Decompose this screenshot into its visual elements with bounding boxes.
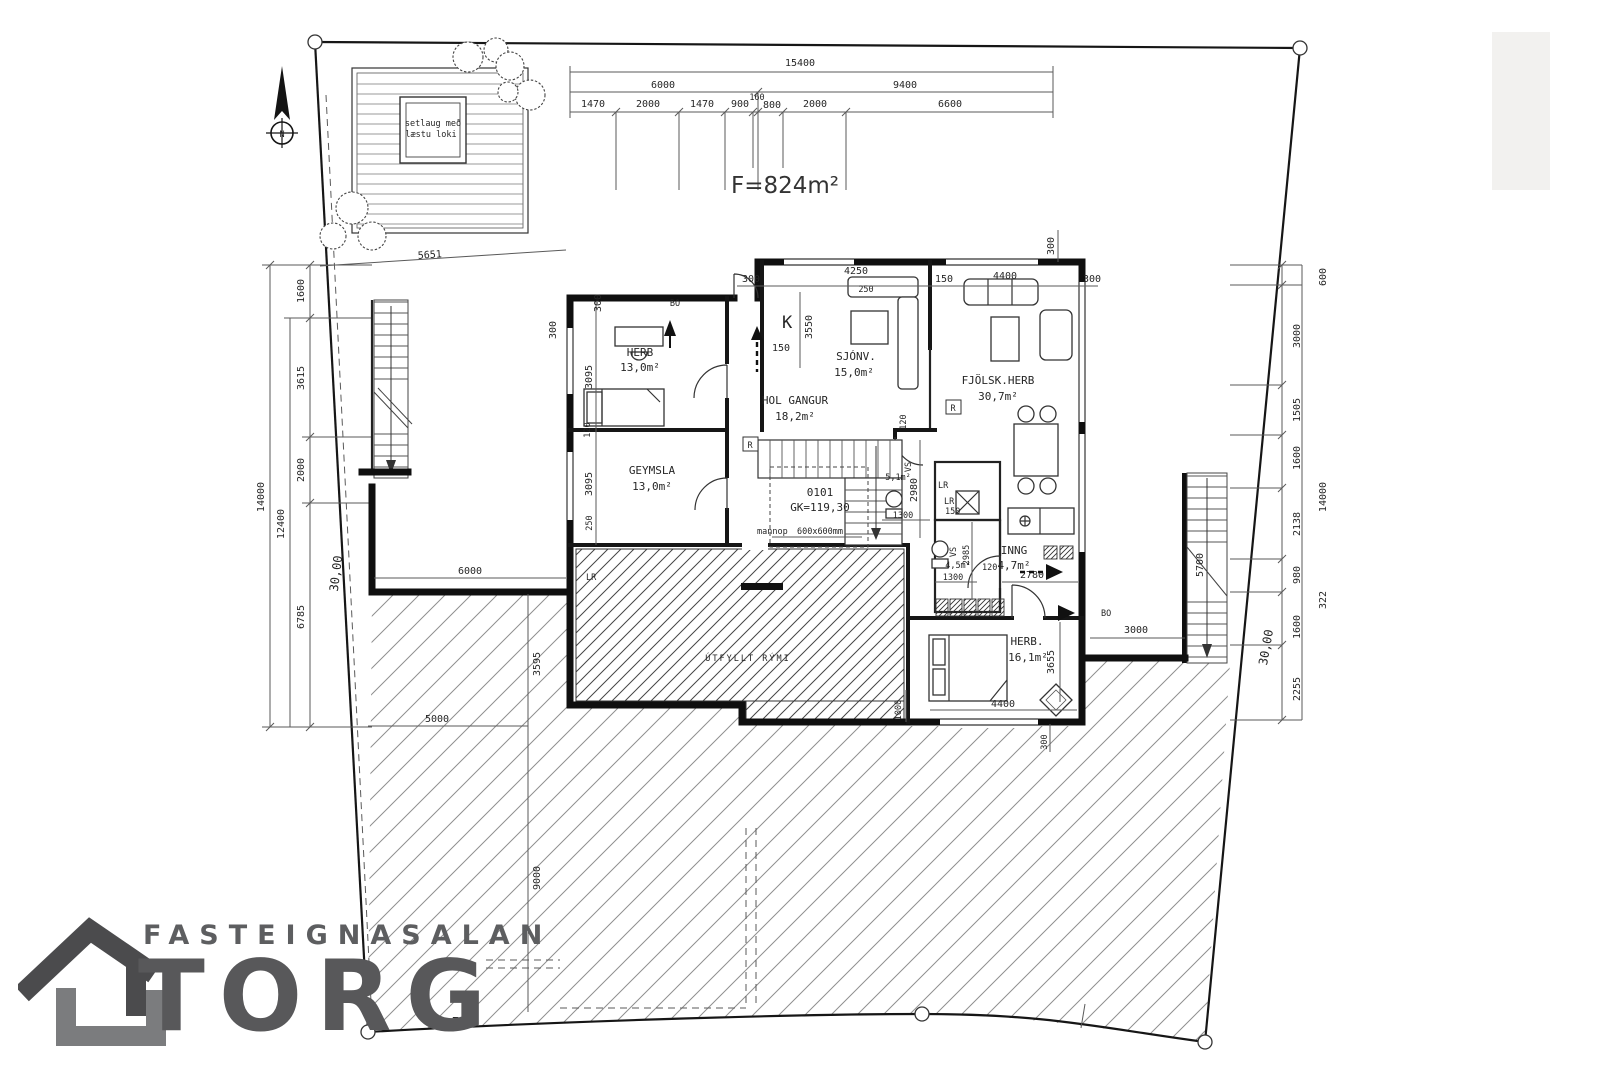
room-label-hol: HOL GANGUR [762, 394, 829, 407]
dim-1470: 1470 [581, 99, 605, 110]
label-lr-150: 150 [945, 507, 960, 517]
boundary-corner-marker [1198, 1035, 1212, 1049]
chair [1018, 478, 1034, 494]
dim-2000: 2000 [636, 99, 660, 110]
nightstand [1040, 684, 1072, 716]
dim-300-wall-a: 300 [548, 321, 559, 339]
dim-3550: 3550 [804, 315, 815, 339]
room-label-fjolsk: FJÖLSK.HERB [962, 374, 1035, 387]
room-label-herb1: HERB [627, 346, 654, 359]
dim-600: 600 [1318, 268, 1329, 286]
dim-150-up: 150 [772, 343, 790, 354]
hot-tub-label-2: læstu loki [405, 130, 456, 140]
dim-900: 900 [731, 99, 749, 110]
label-bo-right: BO [1101, 609, 1111, 619]
boundary-length-left: 30,00 [327, 555, 345, 593]
room-utfyllt-rymi: ÚTFYLLT RÝMI LR [576, 549, 904, 719]
window-glazed-right [1076, 282, 1088, 552]
label-lr-a: LR [586, 573, 597, 583]
dim-14000-left: 14000 [256, 482, 267, 512]
dim-3615: 3615 [296, 366, 307, 390]
wardrobe [936, 599, 1004, 616]
dim-1300-b: 1300 [943, 573, 963, 583]
window-herb2-bottom [940, 716, 1038, 728]
room-label-geymsla: GEYMSLA [629, 464, 676, 477]
dim-300-a: 300 [742, 274, 760, 285]
dim-3095-a: 3095 [584, 365, 595, 389]
dim-4400-top: 4400 [993, 271, 1017, 282]
dim-980: 980 [1292, 566, 1303, 584]
dim-1505: 1505 [1292, 398, 1303, 422]
coffee-table [991, 317, 1019, 361]
armchair [1040, 310, 1072, 360]
kitchen-counter [1008, 508, 1074, 534]
scan-artifact [1492, 32, 1550, 190]
dim-14000-right: 14000 [1318, 482, 1329, 512]
boundary-length-right: 30,00 [1256, 628, 1276, 666]
north-arrow-icon: N [266, 66, 298, 148]
chair [1040, 406, 1056, 422]
agency-logo: FASTEIGNASALAN TORG [18, 898, 538, 1063]
room-area-herb1: 13,0m² [620, 361, 660, 374]
dim-9000: 9000 [532, 866, 543, 890]
dim-6785: 6785 [296, 605, 307, 629]
hot-tub-label-1: setlaug með [405, 119, 461, 129]
dim-300-b: 300 [1083, 274, 1101, 285]
dim-1600-left: 1600 [296, 279, 307, 303]
symbol-r1: R [747, 441, 753, 451]
dim-chain-top: 15400 6000 9400 1470 2000 1470 900 160 8… [570, 58, 1053, 190]
dim-2138: 2138 [1292, 512, 1303, 536]
door-herb1 [694, 365, 727, 398]
dining-table [1014, 424, 1058, 476]
stove [1044, 546, 1057, 559]
window-fjolsk-top [946, 256, 1038, 268]
door-inng [1012, 585, 1045, 618]
dim-5000: 5000 [425, 714, 449, 725]
room-area-inng: 4,7m² [997, 559, 1030, 572]
dim-120-stair: 120 [899, 414, 909, 429]
dim-1470b: 1470 [690, 99, 714, 110]
dim-9400: 9400 [893, 80, 917, 91]
room-label-vs1: VS [904, 462, 914, 472]
desk [615, 327, 663, 346]
room-label-herb2: HERB. [1010, 635, 1043, 648]
dim-chain-left: 14000 12400 1600 3615 2000 6785 [256, 261, 372, 731]
boundary-corner-marker [308, 35, 322, 49]
label-lr-c: LR [944, 497, 955, 507]
dim-4250: 4250 [844, 266, 868, 277]
stove [1060, 546, 1073, 559]
dim-5700: 5700 [1195, 553, 1206, 577]
dim-150: 150 [935, 274, 953, 285]
dim-3095-b: 3095 [584, 472, 595, 496]
dim-1000: 1000 [894, 700, 904, 720]
dim-250-top: 250 [858, 285, 873, 295]
symbol-r2: R [950, 404, 956, 414]
dim-diagonal: 5651 [320, 249, 566, 266]
dim-4400-herb2: 4400 [991, 699, 1015, 710]
boundary-corner-marker [1293, 41, 1307, 55]
dim-322: 322 [1318, 591, 1329, 609]
room-label-utfyllt: ÚTFYLLT RÝMI [705, 652, 790, 664]
dim-800: 800 [763, 100, 781, 111]
dim-3000-right: 3000 [1292, 324, 1303, 348]
room-area-herb2: 16,1m² [1008, 651, 1048, 664]
label-lr-b: LR [938, 481, 949, 491]
mannop-opening [742, 540, 768, 550]
room-label-bath: VS [949, 547, 959, 557]
dim-120-wall: 120 [583, 422, 593, 437]
floor-plan-page: N setlaug með læstu loki [0, 0, 1600, 1066]
dim-2000-left: 2000 [296, 458, 307, 482]
main-stair: 0101 GK=119,30 mannop 600x600mm [757, 440, 902, 547]
fireplace-k-icon: K [782, 313, 793, 333]
toilet [932, 541, 948, 557]
toilet [886, 491, 902, 507]
dim-6600: 6600 [938, 99, 962, 110]
room-area-vs1: 5,1m² [885, 473, 911, 483]
room-label-inng: INNG [1001, 544, 1028, 557]
room-label-sjonv: SJÓNV. [836, 350, 876, 363]
unit-code: 0101 [807, 486, 834, 499]
plot-area-label: F=824m² [731, 173, 839, 199]
dim-chain-right: 600 14000 322 3000 1505 1600 2138 980 16… [1230, 261, 1329, 724]
dim-2255: 2255 [1292, 677, 1303, 701]
dim-12400: 12400 [276, 509, 287, 539]
dim-250: 250 [585, 515, 595, 530]
room-area-fjolsk: 30,7m² [978, 390, 1018, 403]
room-area-sjonv: 15,0m² [834, 366, 874, 379]
dim-300-vert: 300 [1046, 237, 1057, 255]
room-area-bath: 4,5m² [945, 561, 971, 571]
dim-3595: 3595 [532, 652, 543, 676]
room-area-geymsla: 13,0m² [632, 480, 672, 493]
window-geymsla-left [564, 452, 576, 520]
dim-1600-right-b: 1600 [1292, 615, 1303, 639]
mannop-label: mannop [757, 527, 788, 537]
window-herb-left [564, 328, 576, 394]
boundary-corner-marker [915, 1007, 929, 1021]
exterior-stair-left [362, 300, 412, 478]
dim-6000: 6000 [651, 80, 675, 91]
dim-15400: 15400 [785, 58, 815, 69]
north-letter: N [279, 130, 284, 140]
label-bo-top: BO [670, 299, 680, 309]
mannop-size: 600x600mm [797, 527, 843, 537]
logo-text-torg: TORG [138, 940, 500, 1054]
dim-5651: 5651 [417, 249, 442, 262]
unit-gk: GK=119,30 [790, 501, 850, 514]
dim-6000-patio: 6000 [458, 566, 482, 577]
sofa [964, 279, 1038, 305]
exterior-stair-right: 5700 [1185, 473, 1227, 663]
dim-120-bath: 120 [982, 563, 997, 573]
dim-300-bottom: 300 [1040, 734, 1050, 749]
dim-2000b: 2000 [803, 99, 827, 110]
chair [1040, 478, 1056, 494]
dim-1600-right-a: 1600 [1292, 446, 1303, 470]
dim-300-wall-b: 300 [593, 294, 604, 312]
tv-table [851, 311, 888, 344]
door-geymsla [695, 478, 727, 510]
utfyllt-mark [741, 583, 783, 590]
chair [1018, 406, 1034, 422]
dim-3000-stub: 3000 [1124, 625, 1148, 636]
dim-1300-a: 1300 [893, 511, 913, 521]
dim-extension-lines [262, 265, 372, 727]
room-area-hol: 18,2m² [775, 410, 815, 423]
